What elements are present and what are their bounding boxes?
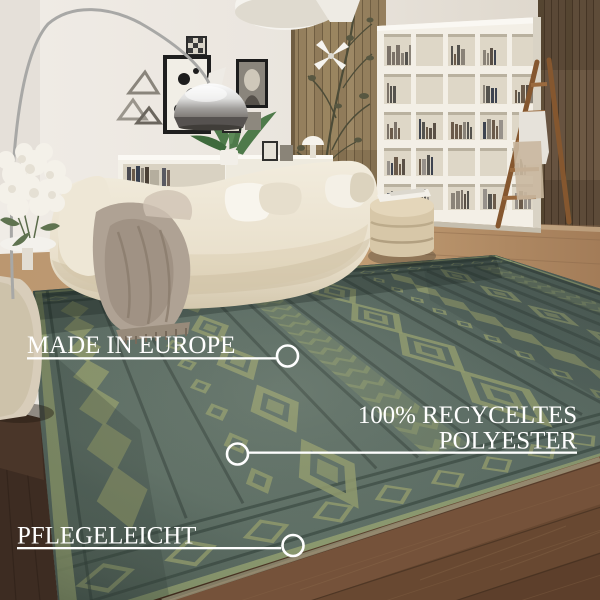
svg-text:POLYESTER: POLYESTER: [439, 428, 578, 455]
svg-text:PFLEGELEICHT: PFLEGELEICHT: [17, 523, 196, 550]
svg-text:MADE IN EUROPE: MADE IN EUROPE: [27, 332, 235, 359]
svg-text:100% RECYCELTES: 100% RECYCELTES: [358, 402, 577, 429]
